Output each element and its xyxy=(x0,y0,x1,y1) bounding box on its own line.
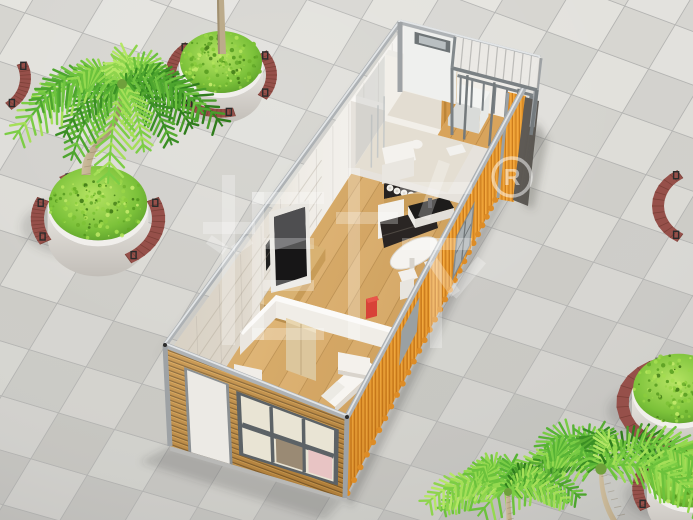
svg-text:R: R xyxy=(504,164,521,190)
